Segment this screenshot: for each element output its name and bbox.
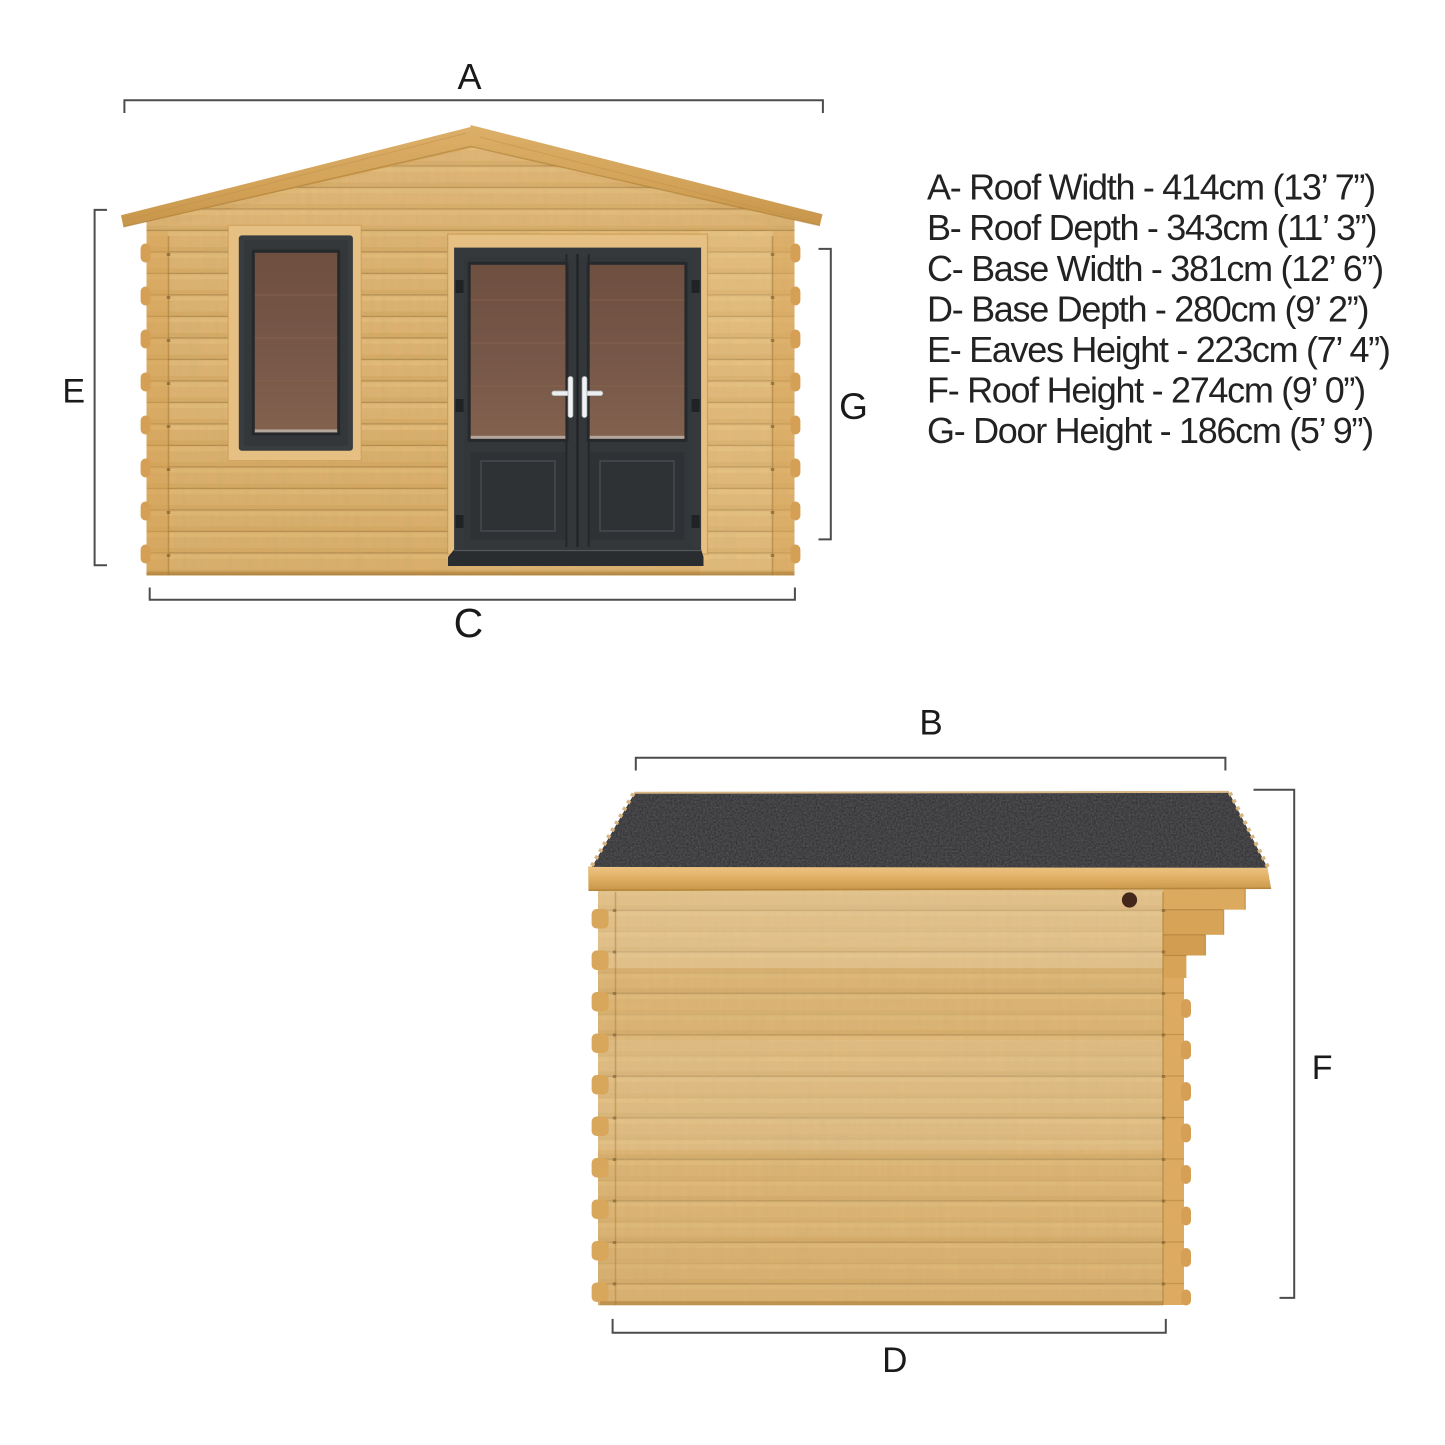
svg-text:F: F <box>1312 1049 1333 1087</box>
svg-text:D: D <box>882 1341 907 1380</box>
svg-text:G: G <box>839 386 868 427</box>
svg-text:E: E <box>62 373 85 411</box>
svg-text:D- Base Depth - 280cm (9’ 2”): D- Base Depth - 280cm (9’ 2”) <box>927 288 1368 329</box>
svg-text:B: B <box>919 703 942 742</box>
svg-text:A: A <box>457 56 481 97</box>
svg-text:B- Roof Depth - 343cm (11’ 3”): B- Roof Depth - 343cm (11’ 3”) <box>927 207 1376 248</box>
svg-text:F- Roof Height - 274cm (9’ 0”): F- Roof Height - 274cm (9’ 0”) <box>927 370 1365 411</box>
svg-text:G- Door Height - 186cm (5’ 9”): G- Door Height - 186cm (5’ 9”) <box>927 410 1373 451</box>
svg-text:C: C <box>454 600 484 646</box>
svg-text:C- Base Width - 381cm (12’ 6”): C- Base Width - 381cm (12’ 6”) <box>927 248 1383 289</box>
svg-text:E- Eaves Height - 223cm (7’ 4”: E- Eaves Height - 223cm (7’ 4”) <box>927 329 1390 370</box>
svg-text:A- Roof Width - 414cm (13’ 7”): A- Roof Width - 414cm (13’ 7”) <box>927 167 1375 208</box>
